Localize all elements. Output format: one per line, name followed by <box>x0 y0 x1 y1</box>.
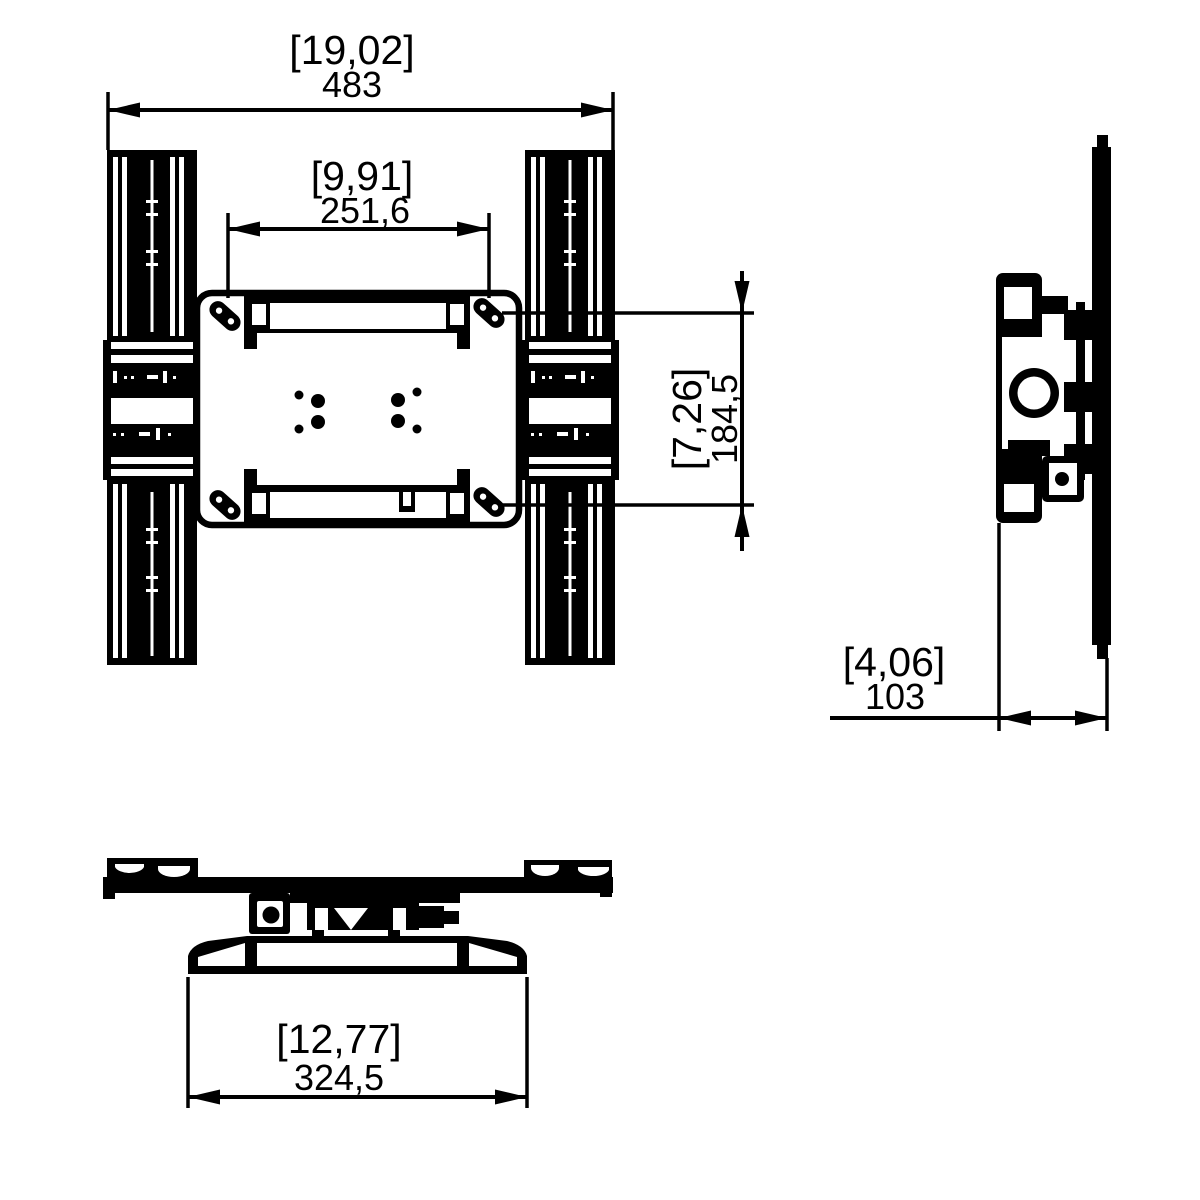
arrowhead-right <box>457 222 489 237</box>
left-rail <box>103 150 201 665</box>
dim-depth: [4,06] 103 <box>830 523 1107 731</box>
bracket-arm <box>1040 296 1068 314</box>
dim-wall-plate-width-mm-label: 324,5 <box>294 1057 384 1098</box>
front-view: [19,02] 483 [9,91] 251,6 [7,26] 184,5 <box>103 27 754 665</box>
dim-wall-plate-width: [12,77] 324,5 <box>188 977 527 1108</box>
arrowhead-left <box>108 103 140 118</box>
pivot-hole <box>1018 377 1051 410</box>
adapter-plate <box>197 293 519 525</box>
side-view: [4,06] 103 <box>830 135 1111 731</box>
wall-plate-center <box>257 943 457 966</box>
right-rail <box>521 150 619 665</box>
left-rail-clamp <box>107 858 198 878</box>
top-tilt-mechanism <box>249 890 460 937</box>
right-rail-clamp <box>524 860 612 878</box>
dim-slot-height-mm-label: 184,5 <box>704 374 745 464</box>
side-rail <box>1092 135 1111 659</box>
dim-overall-width: [19,02] 483 <box>108 27 613 150</box>
dim-inner-width-mm-label: 251,6 <box>320 190 410 231</box>
top-view: [12,77] 324,5 <box>103 858 613 1108</box>
dim-depth-mm-label: 103 <box>865 676 925 717</box>
arrowhead-left <box>999 711 1031 726</box>
bracket-cross-rib <box>1008 440 1050 456</box>
arrowhead-left <box>228 222 260 237</box>
adjust-knob <box>418 906 459 928</box>
arrowhead-right <box>495 1090 527 1105</box>
pivot-box <box>249 893 290 934</box>
side-bracket <box>996 273 1093 523</box>
arrowhead-right <box>581 103 613 118</box>
arrowhead-bottom <box>735 505 750 537</box>
mount-plate-edge <box>1076 302 1085 480</box>
top-wall-plate <box>188 936 527 974</box>
dim-inner-width: [9,91] 251,6 <box>228 153 489 298</box>
arrowhead-right <box>1075 711 1107 726</box>
dim-overall-width-mm-label: 483 <box>322 64 382 105</box>
knob-box <box>1042 456 1084 502</box>
arrowhead-top <box>735 281 750 313</box>
technical-drawing: [19,02] 483 [9,91] 251,6 [7,26] 184,5 <box>0 0 1200 1200</box>
arrowhead-left <box>188 1090 220 1105</box>
dim-wall-plate-width-inches-label: [12,77] <box>276 1016 401 1062</box>
